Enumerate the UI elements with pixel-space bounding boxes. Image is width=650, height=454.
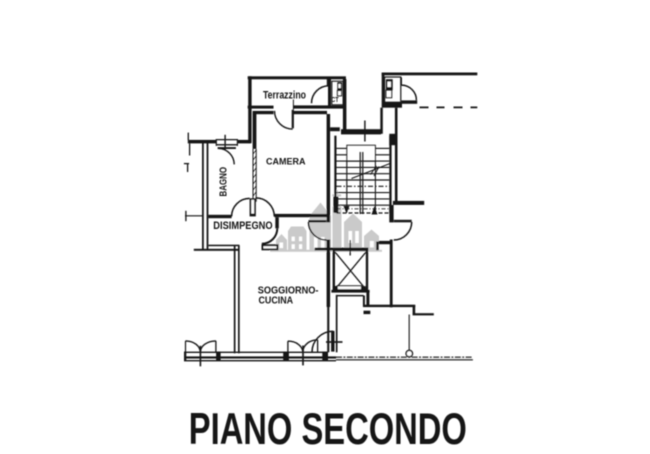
svg-text:DISIMPEGNO: DISIMPEGNO: [213, 220, 272, 232]
svg-text:CAMERA: CAMERA: [266, 156, 306, 167]
svg-text:PIANO SECONDO: PIANO SECONDO: [189, 405, 467, 454]
svg-text:CUCINA: CUCINA: [259, 296, 294, 307]
svg-text:Terrazzino: Terrazzino: [263, 90, 306, 102]
svg-text:BAGNO: BAGNO: [219, 167, 230, 197]
svg-text:CT: CT: [331, 97, 339, 104]
